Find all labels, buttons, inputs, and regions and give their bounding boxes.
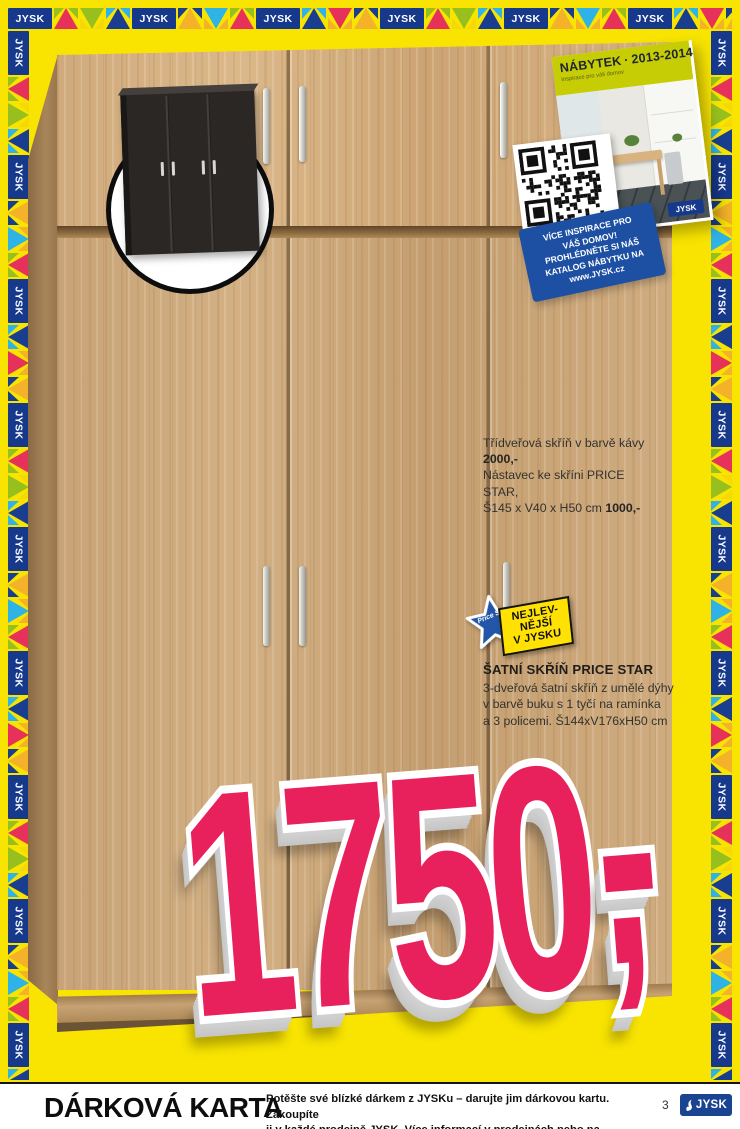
border-triangle-icon (602, 8, 626, 29)
jysk-border-logo-text: JYSK (716, 38, 728, 67)
border-triangle-icon (711, 77, 732, 101)
border-triangle-icon (8, 253, 29, 277)
border-triangle-icon (8, 103, 29, 127)
door-gap (487, 42, 490, 234)
jysk-border-logo-text: JYSK (13, 38, 25, 67)
jysk-border-logo: JYSK (711, 527, 732, 571)
jysk-border-logo: JYSK (8, 775, 29, 819)
border-triangle-icon (8, 227, 29, 251)
product-title: ŠATNÍ SKŘÍŇ PRICE STAR (483, 662, 678, 677)
jysk-border-logo-text: JYSK (716, 534, 728, 563)
gift-card-text: Potěšte své blízké dárkem z JYSKu – daru… (266, 1092, 651, 1129)
jysk-border-logo-text: JYSK (387, 13, 416, 25)
border-triangle-icon (178, 8, 202, 29)
jysk-border-logo: JYSK (380, 8, 424, 29)
dark-wardrobe-variant (120, 89, 260, 256)
border-triangle-icon (106, 8, 130, 29)
jysk-border-logo-text: JYSK (716, 162, 728, 191)
border-triangle-icon (711, 351, 732, 375)
price-front-layer: 1750 -, (174, 752, 668, 1024)
door-handle (263, 88, 270, 164)
jysk-border-logo: JYSK (8, 899, 29, 943)
jysk-border-logo: JYSK (132, 8, 176, 29)
page-number: 3 (662, 1098, 669, 1112)
border-triangle-icon (711, 475, 732, 499)
door-handle (500, 82, 507, 158)
product-note: Třídveřová skříň v barvě kávy 2000,- Nás… (483, 435, 663, 516)
border-triangle-icon (54, 8, 78, 29)
jysk-logo: JYSK (680, 1094, 732, 1116)
jysk-border-logo-text: JYSK (716, 410, 728, 439)
gift-card-text-line2: ji v každé prodejně JYSK. Více informací… (266, 1124, 600, 1129)
border-triangle-icon (8, 723, 29, 747)
border-triangle-icon (711, 697, 732, 721)
border-triangle-icon (674, 8, 698, 29)
border-triangle-icon (478, 8, 502, 29)
jysk-swan-icon (685, 1099, 694, 1112)
jysk-border-logo-text: JYSK (511, 13, 540, 25)
door-handle (263, 566, 270, 646)
footer: DÁRKOVÁ KARTA Potěšte své blízké dárkem … (0, 1082, 740, 1129)
border-triangle-icon (8, 501, 29, 525)
border-triangle-icon (8, 873, 29, 897)
jysk-border-logo-text: JYSK (716, 658, 728, 687)
border-triangle-icon (8, 201, 29, 225)
door-handle (213, 160, 216, 174)
door-gap (287, 42, 290, 234)
border-triangle-icon (8, 749, 29, 773)
border-left: JYSKJYSKJYSKJYSKJYSKJYSKJYSKJYSKJYSK (8, 31, 29, 1080)
door-handle (299, 566, 306, 646)
jysk-border-logo: JYSK (8, 155, 29, 199)
product-desc-line: 3-dveřová šatní skříň z umělé dýhy (483, 680, 678, 696)
jysk-border-logo: JYSK (711, 31, 732, 75)
jysk-border-logo: JYSK (504, 8, 548, 29)
border-triangle-icon (726, 8, 732, 29)
catalog-title-separator: · (623, 53, 629, 67)
jysk-border-logo-text: JYSK (13, 534, 25, 563)
price-value: 1750 (174, 758, 598, 1024)
border-triangle-icon (711, 103, 732, 127)
price-display: 1750 -, 1750 -, (174, 747, 738, 1118)
border-triangle-icon (8, 475, 29, 499)
border-triangle-icon (8, 351, 29, 375)
jysk-logo-text: JYSK (696, 1099, 727, 1111)
border-triangle-icon (711, 573, 732, 597)
border-triangle-icon (8, 77, 29, 101)
jysk-border-logo-text: JYSK (15, 13, 44, 25)
border-triangle-icon (8, 625, 29, 649)
border-triangle-icon (8, 129, 29, 153)
border-triangle-icon (230, 8, 254, 29)
border-triangle-icon (550, 8, 574, 29)
jysk-border-logo: JYSK (256, 8, 300, 29)
border-triangle-icon (354, 8, 378, 29)
jysk-border-logo-text: JYSK (13, 410, 25, 439)
border-triangle-icon (8, 697, 29, 721)
note-price2: 1000,- (605, 501, 640, 515)
note-price1: 2000,- (483, 452, 518, 466)
jysk-border-logo: JYSK (8, 527, 29, 571)
catalog-page: JYSKJYSKJYSKJYSKJYSKJYSKJYSK JYSKJYSKJYS… (0, 0, 740, 1129)
wardrobe-side-panel (28, 42, 58, 1012)
border-triangle-icon (711, 449, 732, 473)
border-triangle-icon (576, 8, 600, 29)
door-handle (299, 86, 306, 162)
jysk-border-logo: JYSK (8, 651, 29, 695)
border-triangle-icon (452, 8, 476, 29)
border-top: JYSKJYSKJYSKJYSKJYSKJYSKJYSK (8, 8, 732, 29)
border-triangle-icon (711, 749, 732, 773)
jysk-border-logo-text: JYSK (13, 906, 25, 935)
border-triangle-icon (711, 129, 732, 153)
jysk-border-logo-text: JYSK (139, 13, 168, 25)
border-triangle-icon (8, 449, 29, 473)
border-triangle-icon (711, 377, 732, 401)
gift-card-title: DÁRKOVÁ KARTA (44, 1092, 283, 1124)
gift-card-text-line1: Potěšte své blízké dárkem z JYSKu – daru… (266, 1093, 609, 1121)
note-line2: Nástavec ke skříni PRICE STAR, (483, 468, 624, 498)
border-triangle-icon (8, 1069, 29, 1080)
note-line3: Š145 x V40 x H50 cm (483, 501, 605, 515)
jysk-border-logo-text: JYSK (716, 782, 728, 811)
jysk-border-logo: JYSK (711, 651, 732, 695)
border-triangle-icon (8, 599, 29, 623)
border-triangle-icon (8, 573, 29, 597)
border-triangle-icon (8, 821, 29, 845)
jysk-border-logo: JYSK (628, 8, 672, 29)
border-triangle-icon (328, 8, 352, 29)
jysk-border-logo-text: JYSK (13, 162, 25, 191)
jysk-border-logo: JYSK (711, 403, 732, 447)
jysk-border-logo-text: JYSK (635, 13, 664, 25)
jysk-border-logo: JYSK (8, 1023, 29, 1067)
border-triangle-icon (204, 8, 228, 29)
jysk-border-logo-text: JYSK (13, 658, 25, 687)
jysk-border-logo: JYSK (711, 155, 732, 199)
jysk-border-logo: JYSK (8, 8, 52, 29)
border-triangle-icon (8, 325, 29, 349)
border-triangle-icon (8, 945, 29, 969)
jysk-border-logo: JYSK (8, 279, 29, 323)
door-handle (172, 162, 175, 176)
border-triangle-icon (711, 501, 732, 525)
border-triangle-icon (80, 8, 104, 29)
border-triangle-icon (700, 8, 724, 29)
jysk-border-logo-text: JYSK (13, 782, 25, 811)
jysk-border-logo-text: JYSK (716, 286, 728, 315)
jysk-border-logo: JYSK (8, 403, 29, 447)
jysk-border-logo: JYSK (711, 279, 732, 323)
border-triangle-icon (8, 997, 29, 1021)
border-triangle-icon (302, 8, 326, 29)
jysk-border-logo: JYSK (8, 31, 29, 75)
jysk-border-logo-text: JYSK (13, 1030, 25, 1059)
jysk-border-logo-text: JYSK (263, 13, 292, 25)
border-triangle-icon (426, 8, 450, 29)
border-triangle-icon (711, 201, 732, 225)
border-triangle-icon (711, 325, 732, 349)
door-handle (202, 160, 205, 174)
border-triangle-icon (8, 971, 29, 995)
border-triangle-icon (8, 377, 29, 401)
border-triangle-icon (711, 227, 732, 251)
border-triangle-icon (711, 625, 732, 649)
border-triangle-icon (711, 723, 732, 747)
border-triangle-icon (711, 599, 732, 623)
border-triangle-icon (711, 253, 732, 277)
jysk-border-logo-text: JYSK (13, 286, 25, 315)
door-handle (161, 162, 164, 176)
border-triangle-icon (8, 847, 29, 871)
color-variant-inset (106, 126, 274, 294)
note-line1: Třídveřová skříň v barvě kávy (483, 436, 644, 450)
